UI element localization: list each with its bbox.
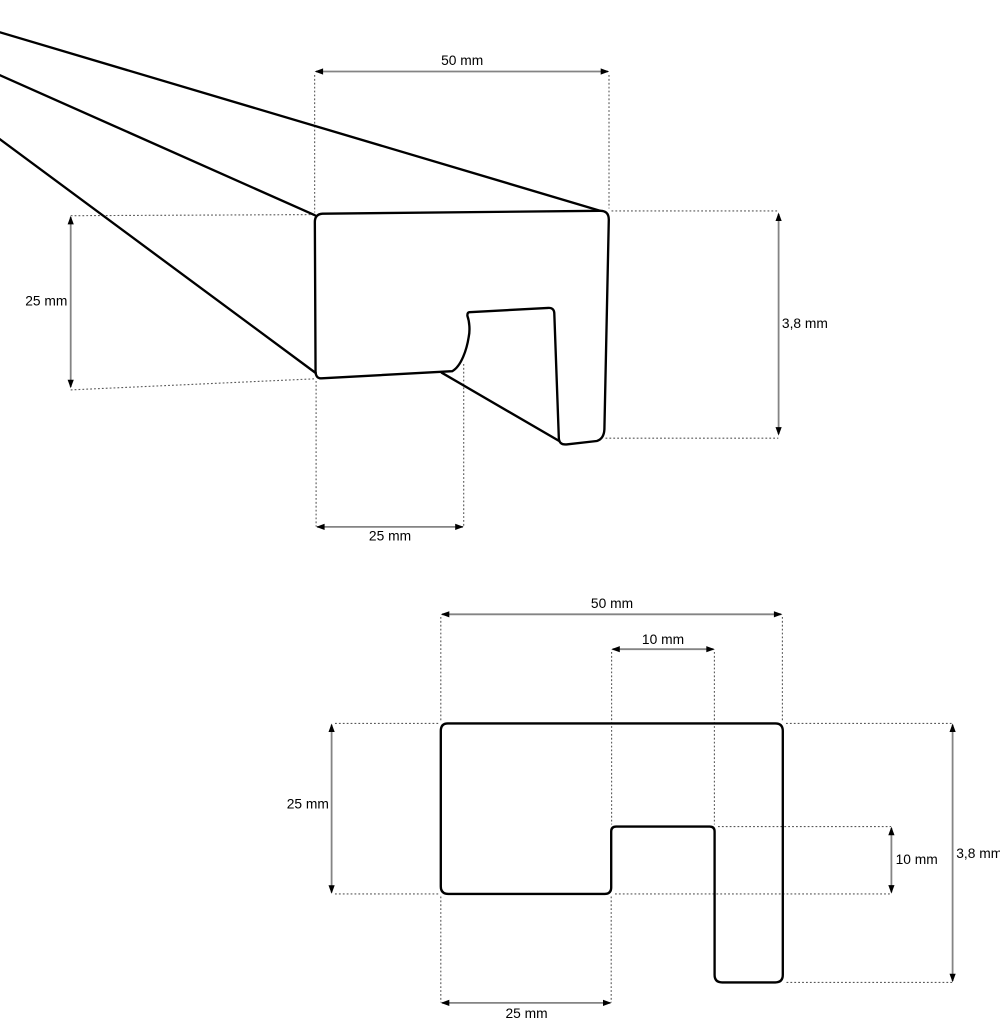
svg-text:3,8 mm: 3,8 mm (956, 846, 1000, 861)
svg-text:25 mm: 25 mm (287, 797, 329, 812)
svg-text:3,8 mm: 3,8 mm (782, 316, 828, 331)
svg-text:25 mm: 25 mm (369, 528, 411, 543)
svg-text:50 mm: 50 mm (591, 596, 633, 611)
svg-text:25 mm: 25 mm (25, 294, 67, 309)
svg-text:50 mm: 50 mm (441, 53, 483, 68)
svg-text:10 mm: 10 mm (642, 632, 684, 647)
svg-text:25 mm: 25 mm (506, 1006, 548, 1021)
svg-text:10 mm: 10 mm (896, 852, 938, 867)
